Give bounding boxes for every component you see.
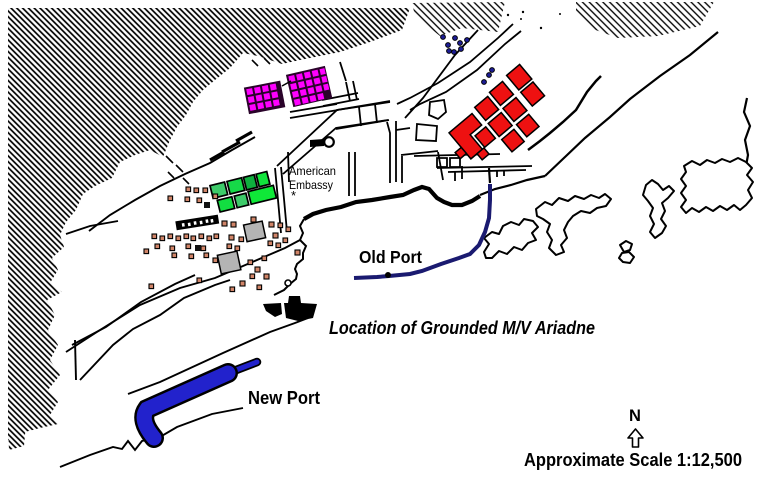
svg-text:Approximate Scale 1:12,500: Approximate Scale 1:12,500 [524,449,742,470]
svg-text:American: American [289,164,336,178]
svg-text:N: N [629,407,641,425]
svg-text:New Port: New Port [248,388,320,408]
svg-text:Old Port: Old Port [359,247,422,267]
svg-text:Location of Grounded M/V Ariad: Location of Grounded M/V Ariadne [329,318,595,338]
svg-text:*: * [291,188,296,203]
